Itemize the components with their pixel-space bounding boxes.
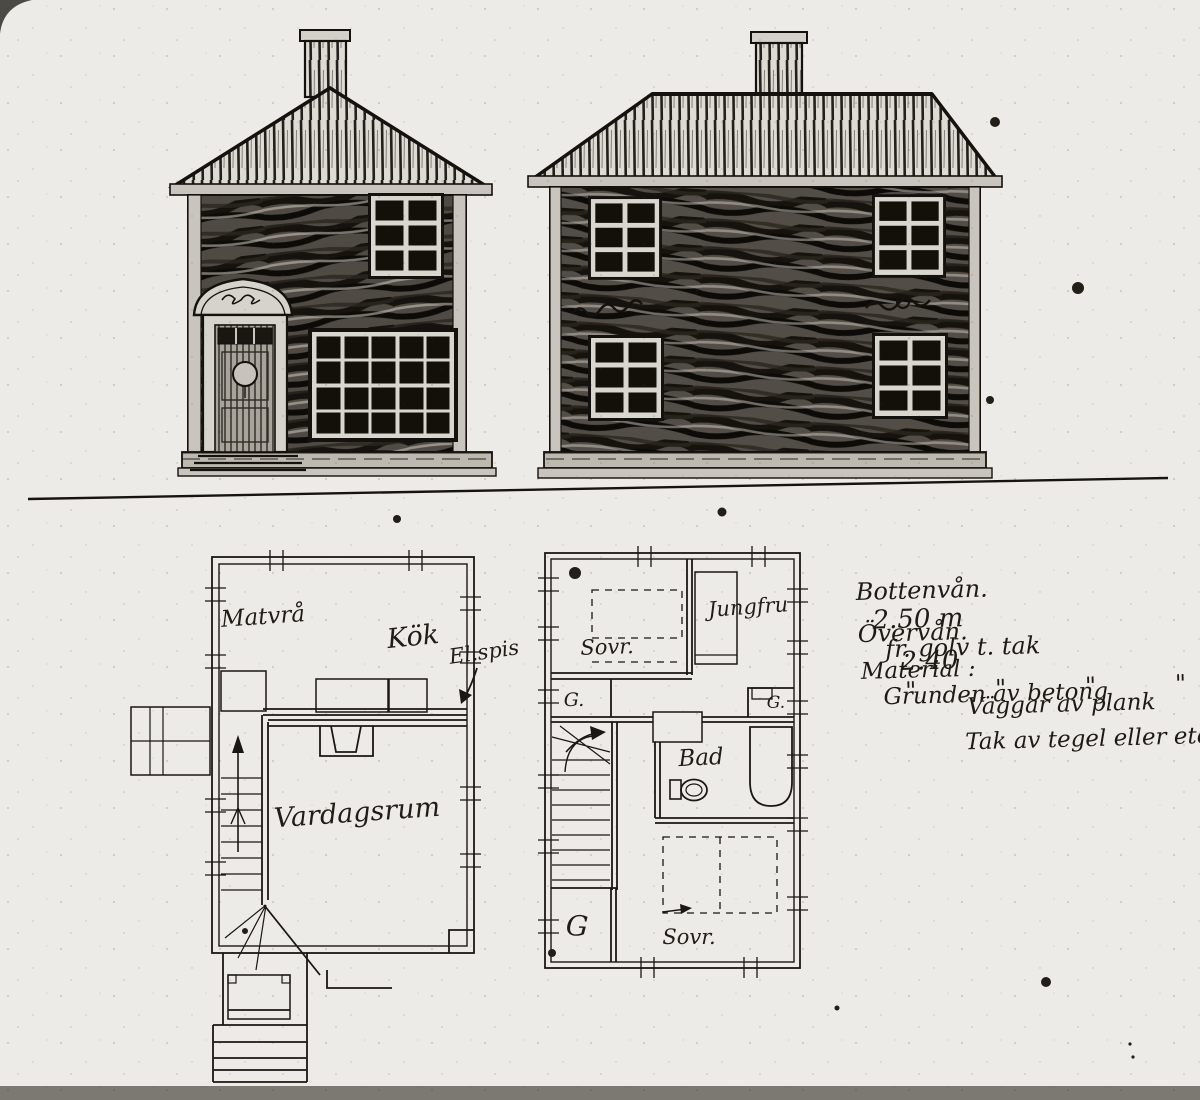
note-value: Tak av tegel eller eternit	[965, 722, 1200, 756]
side-elevation	[528, 32, 1002, 478]
chimney	[305, 41, 346, 97]
toilet-icon	[670, 780, 707, 801]
matvra-cupboard	[221, 671, 266, 711]
bad-door-leaf	[653, 712, 702, 742]
hipped-roof	[534, 94, 996, 178]
door-porthole	[233, 362, 257, 386]
upper-window	[370, 195, 443, 278]
corner-trim-left	[188, 195, 201, 452]
room-label-bad: Bad	[678, 744, 725, 772]
room-label-sovr-top: Sovr.	[580, 634, 634, 660]
window-upper-left	[589, 198, 660, 279]
corner-trim-right	[969, 187, 980, 452]
scanned-drawing-photo: Matvrå Kök El.spis Vardagsrum Sovr. Jung…	[0, 0, 1200, 1100]
plinth	[544, 452, 986, 468]
entry-porch	[213, 953, 307, 1082]
large-lower-window	[310, 330, 456, 440]
electric-stove	[389, 679, 427, 712]
room-label-kok: Kök	[385, 619, 440, 655]
door-transom	[218, 328, 272, 344]
roof	[174, 88, 486, 186]
room-label-sovr-bottom: Sovr.	[662, 925, 715, 949]
eaves-board	[528, 176, 1002, 187]
staircase	[221, 778, 266, 970]
base-board	[538, 468, 992, 478]
note-row-tak: Tak av tegel eller eternit	[935, 696, 1200, 782]
corner-trim-left	[550, 187, 561, 452]
side-steps	[131, 707, 210, 775]
bottom-strip	[0, 1086, 1200, 1100]
room-label-g-top-right: G.	[767, 693, 785, 713]
chimney-cap	[300, 30, 350, 41]
chimney	[756, 43, 802, 95]
room-label-g-bottom: G	[565, 909, 589, 943]
chimney-cap	[751, 32, 807, 43]
ground-line	[28, 478, 1168, 499]
kitchen-counter	[316, 679, 388, 712]
room-label-g-top-left: G.	[564, 689, 585, 711]
corner-notch	[0, 0, 32, 34]
bed-outline-sovr-bottom	[663, 837, 777, 913]
upper-staircase	[552, 726, 610, 880]
bathtub-icon	[750, 727, 792, 806]
window-lower-left	[590, 337, 663, 420]
gable-end-elevation	[170, 30, 496, 476]
plinth	[182, 452, 492, 468]
window-upper-right	[873, 196, 944, 277]
window-lower-right	[874, 335, 947, 418]
